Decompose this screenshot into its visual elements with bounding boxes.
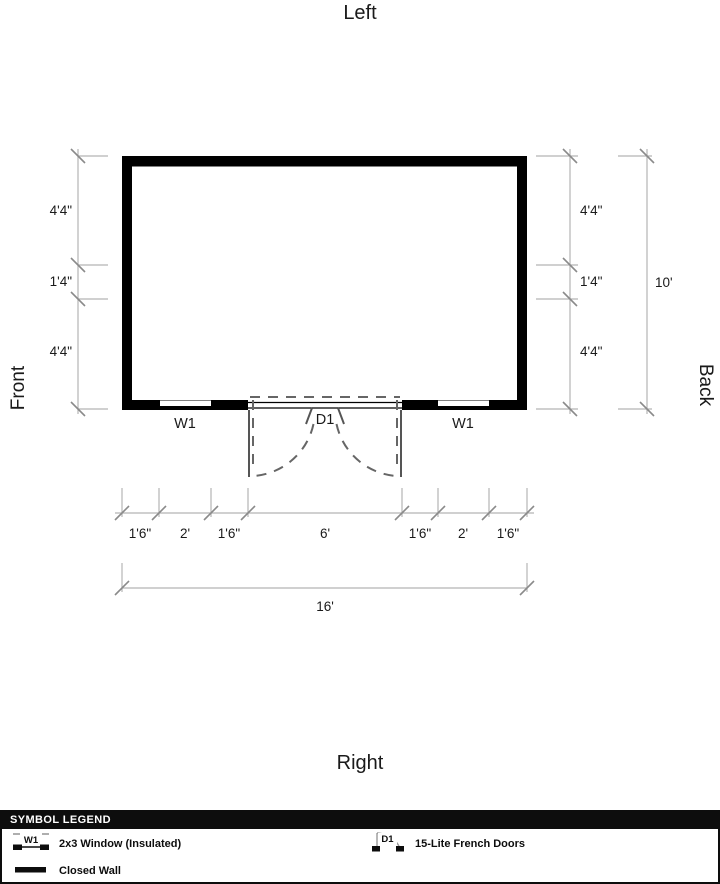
window-legend-symbol-label: W1 [24, 835, 39, 846]
window-symbol-left [160, 401, 211, 407]
dimension-label: 4'4" [580, 203, 603, 218]
dimension-label: 4'4" [580, 344, 603, 359]
dimension-label: 1'6" [497, 526, 520, 541]
dimension-right-total: 10' [618, 149, 673, 416]
door-legend-symbol-label: D1 [381, 834, 394, 845]
dimension-label: 4'4" [50, 344, 73, 359]
dimension-label: 1'4" [50, 274, 73, 289]
dimension-chain-left: 4'4" 1'4" 4'4" [50, 149, 108, 416]
door-legend-label: 15-Lite French Doors [415, 838, 525, 850]
door-legend-icon: D1 [372, 830, 404, 853]
symbol-legend: SYMBOL LEGEND W1 2x3 Window (Insulated) … [0, 810, 720, 884]
symbol-legend-header: SYMBOL LEGEND [2, 812, 718, 829]
dimension-bottom-total: 16' [115, 563, 534, 614]
closed-wall-legend-icon [15, 865, 47, 875]
dimension-label: 6' [320, 526, 330, 541]
window-legend-icon: W1 [12, 831, 50, 853]
closed-wall-legend-label: Closed Wall [59, 865, 121, 877]
dimension-label: 10' [655, 275, 673, 290]
dimension-chain-bottom: 1'6" 2' 1'6" 6' 1'6" 2' 1'6" [115, 488, 534, 541]
window-right-label: W1 [452, 416, 474, 432]
dimension-label: 2' [458, 526, 468, 541]
window-symbol-right [438, 401, 489, 407]
window-left-label: W1 [174, 416, 196, 432]
dimension-label: 2' [180, 526, 190, 541]
symbol-legend-title: SYMBOL LEGEND [10, 814, 111, 826]
dimension-label: 4'4" [50, 203, 73, 218]
dimension-label: 16' [316, 599, 334, 614]
floor-plan-drawing: W1 D1 W1 4'4" 1'4" 4'4" [0, 0, 720, 884]
dimension-label: 1'6" [409, 526, 432, 541]
dimension-label: 1'4" [580, 274, 603, 289]
window-legend-label: 2x3 Window (Insulated) [59, 838, 181, 850]
dimension-label: 1'6" [218, 526, 241, 541]
dimension-label: 1'6" [129, 526, 152, 541]
floor-plan-page: Left Right Front Back [0, 0, 720, 884]
building-walls [122, 156, 527, 410]
symbol-legend-body: W1 2x3 Window (Insulated) D1 15-Lite Fre… [2, 829, 718, 881]
dimension-chain-right: 4'4" 1'4" 4'4" [536, 149, 603, 416]
door-symbol [248, 397, 402, 477]
door-label: D1 [316, 412, 335, 428]
